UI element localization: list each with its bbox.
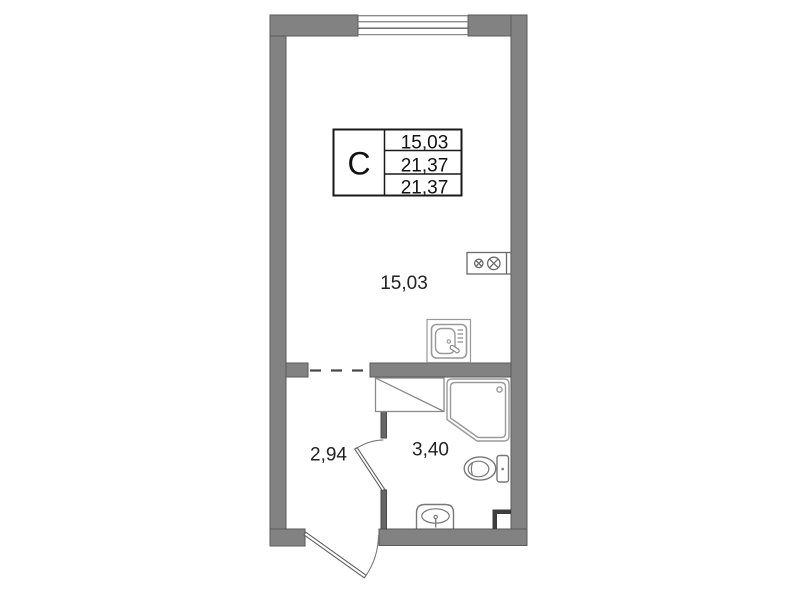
svg-text:С: С: [347, 146, 370, 182]
svg-text:3,40: 3,40: [412, 440, 449, 461]
svg-text:15,03: 15,03: [380, 273, 428, 294]
svg-text:2,94: 2,94: [310, 445, 347, 466]
svg-text:21,37: 21,37: [401, 156, 449, 177]
svg-text:15,03: 15,03: [401, 133, 449, 154]
svg-text:21,37: 21,37: [401, 178, 449, 199]
